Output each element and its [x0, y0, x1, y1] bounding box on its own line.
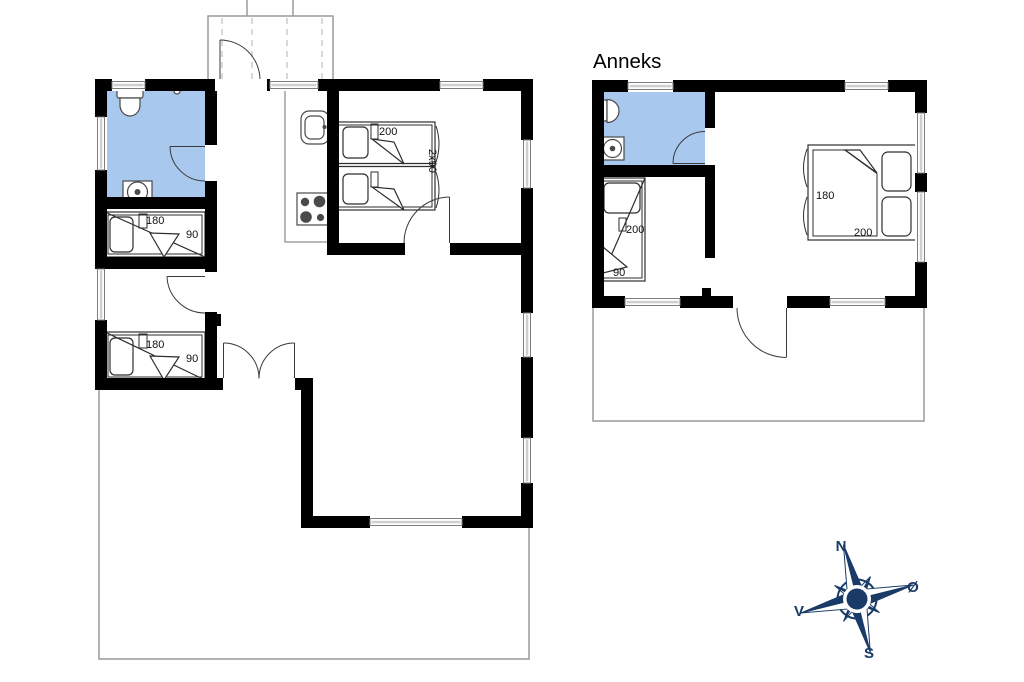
kitchen-sink-icon — [301, 111, 329, 144]
window — [915, 192, 927, 262]
window — [370, 516, 462, 528]
annex-door-opening — [733, 296, 787, 308]
window — [112, 79, 145, 91]
annex-terrace — [593, 307, 924, 421]
bed-length-label: 180 — [146, 215, 164, 227]
bed-width-label: 90 — [186, 353, 198, 365]
compass-west-label: V — [794, 603, 804, 620]
floor-plan-page: 180 90 180 90 200 2x90 — [0, 0, 1024, 682]
annex-house: Anneks 200 90 180 200 — [592, 50, 927, 358]
window — [521, 140, 533, 188]
bed-length-label: 180 — [146, 339, 164, 351]
main-house: 180 90 180 90 200 2x90 — [95, 79, 533, 528]
window — [625, 296, 680, 308]
window — [915, 113, 927, 173]
kitchen-counter — [285, 86, 329, 242]
window — [830, 296, 885, 308]
annex-washbasin-icon — [601, 137, 624, 160]
window — [95, 269, 107, 320]
window — [521, 313, 533, 357]
terrace-french-doors — [224, 343, 295, 379]
compass-south-label: S — [864, 645, 874, 662]
window — [270, 79, 318, 91]
entry-porch — [208, 0, 333, 84]
annex-entry-door-arc — [737, 308, 787, 358]
compass-north-label: N — [836, 538, 847, 555]
bed-width-label: 2x90 — [426, 149, 438, 173]
window — [521, 438, 533, 483]
annex-title: Anneks — [593, 50, 661, 73]
bed-length-label: 200 — [379, 126, 397, 138]
compass-rose: N Ø S V — [787, 531, 926, 667]
bed-width-label: 90 — [613, 267, 625, 279]
window — [845, 80, 888, 92]
bed-width-label: 90 — [186, 229, 198, 241]
bed-length-label: 200 — [854, 227, 872, 239]
bed-width-label: 180 — [816, 190, 834, 202]
bed-length-label: 200 — [626, 224, 644, 236]
stove-icon — [297, 193, 328, 225]
compass-east-label: Ø — [907, 579, 919, 596]
hall-door-arc — [167, 277, 205, 314]
window — [440, 79, 483, 91]
window — [95, 117, 107, 170]
window — [628, 80, 673, 92]
floor-plan-svg: 180 90 180 90 200 2x90 — [0, 0, 1024, 682]
